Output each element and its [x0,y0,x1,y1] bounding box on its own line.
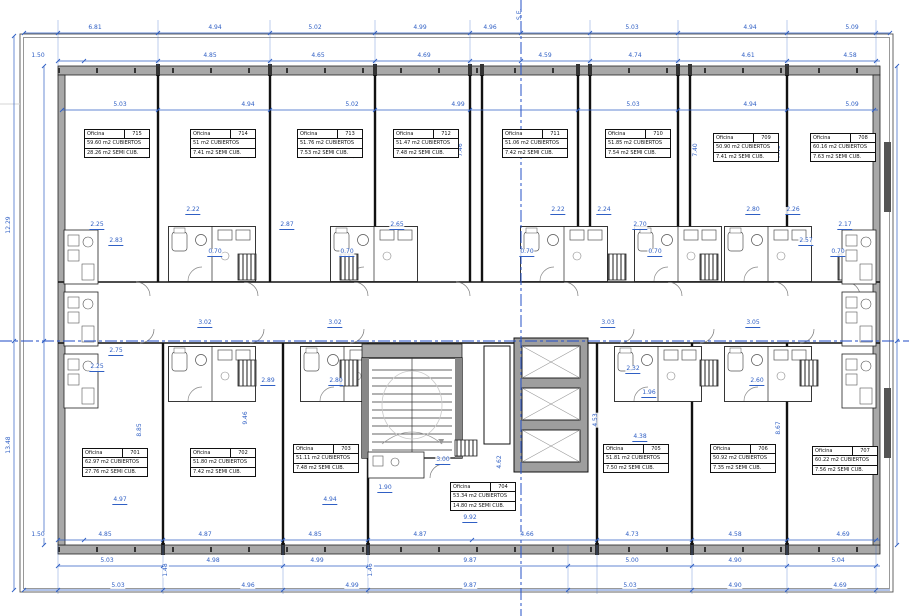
axis-label-se: S.E. [516,9,523,20]
plan-linework [0,0,909,616]
floor-plan: 6.814.945.024.994.965.034.945.091.504.85… [0,0,909,616]
